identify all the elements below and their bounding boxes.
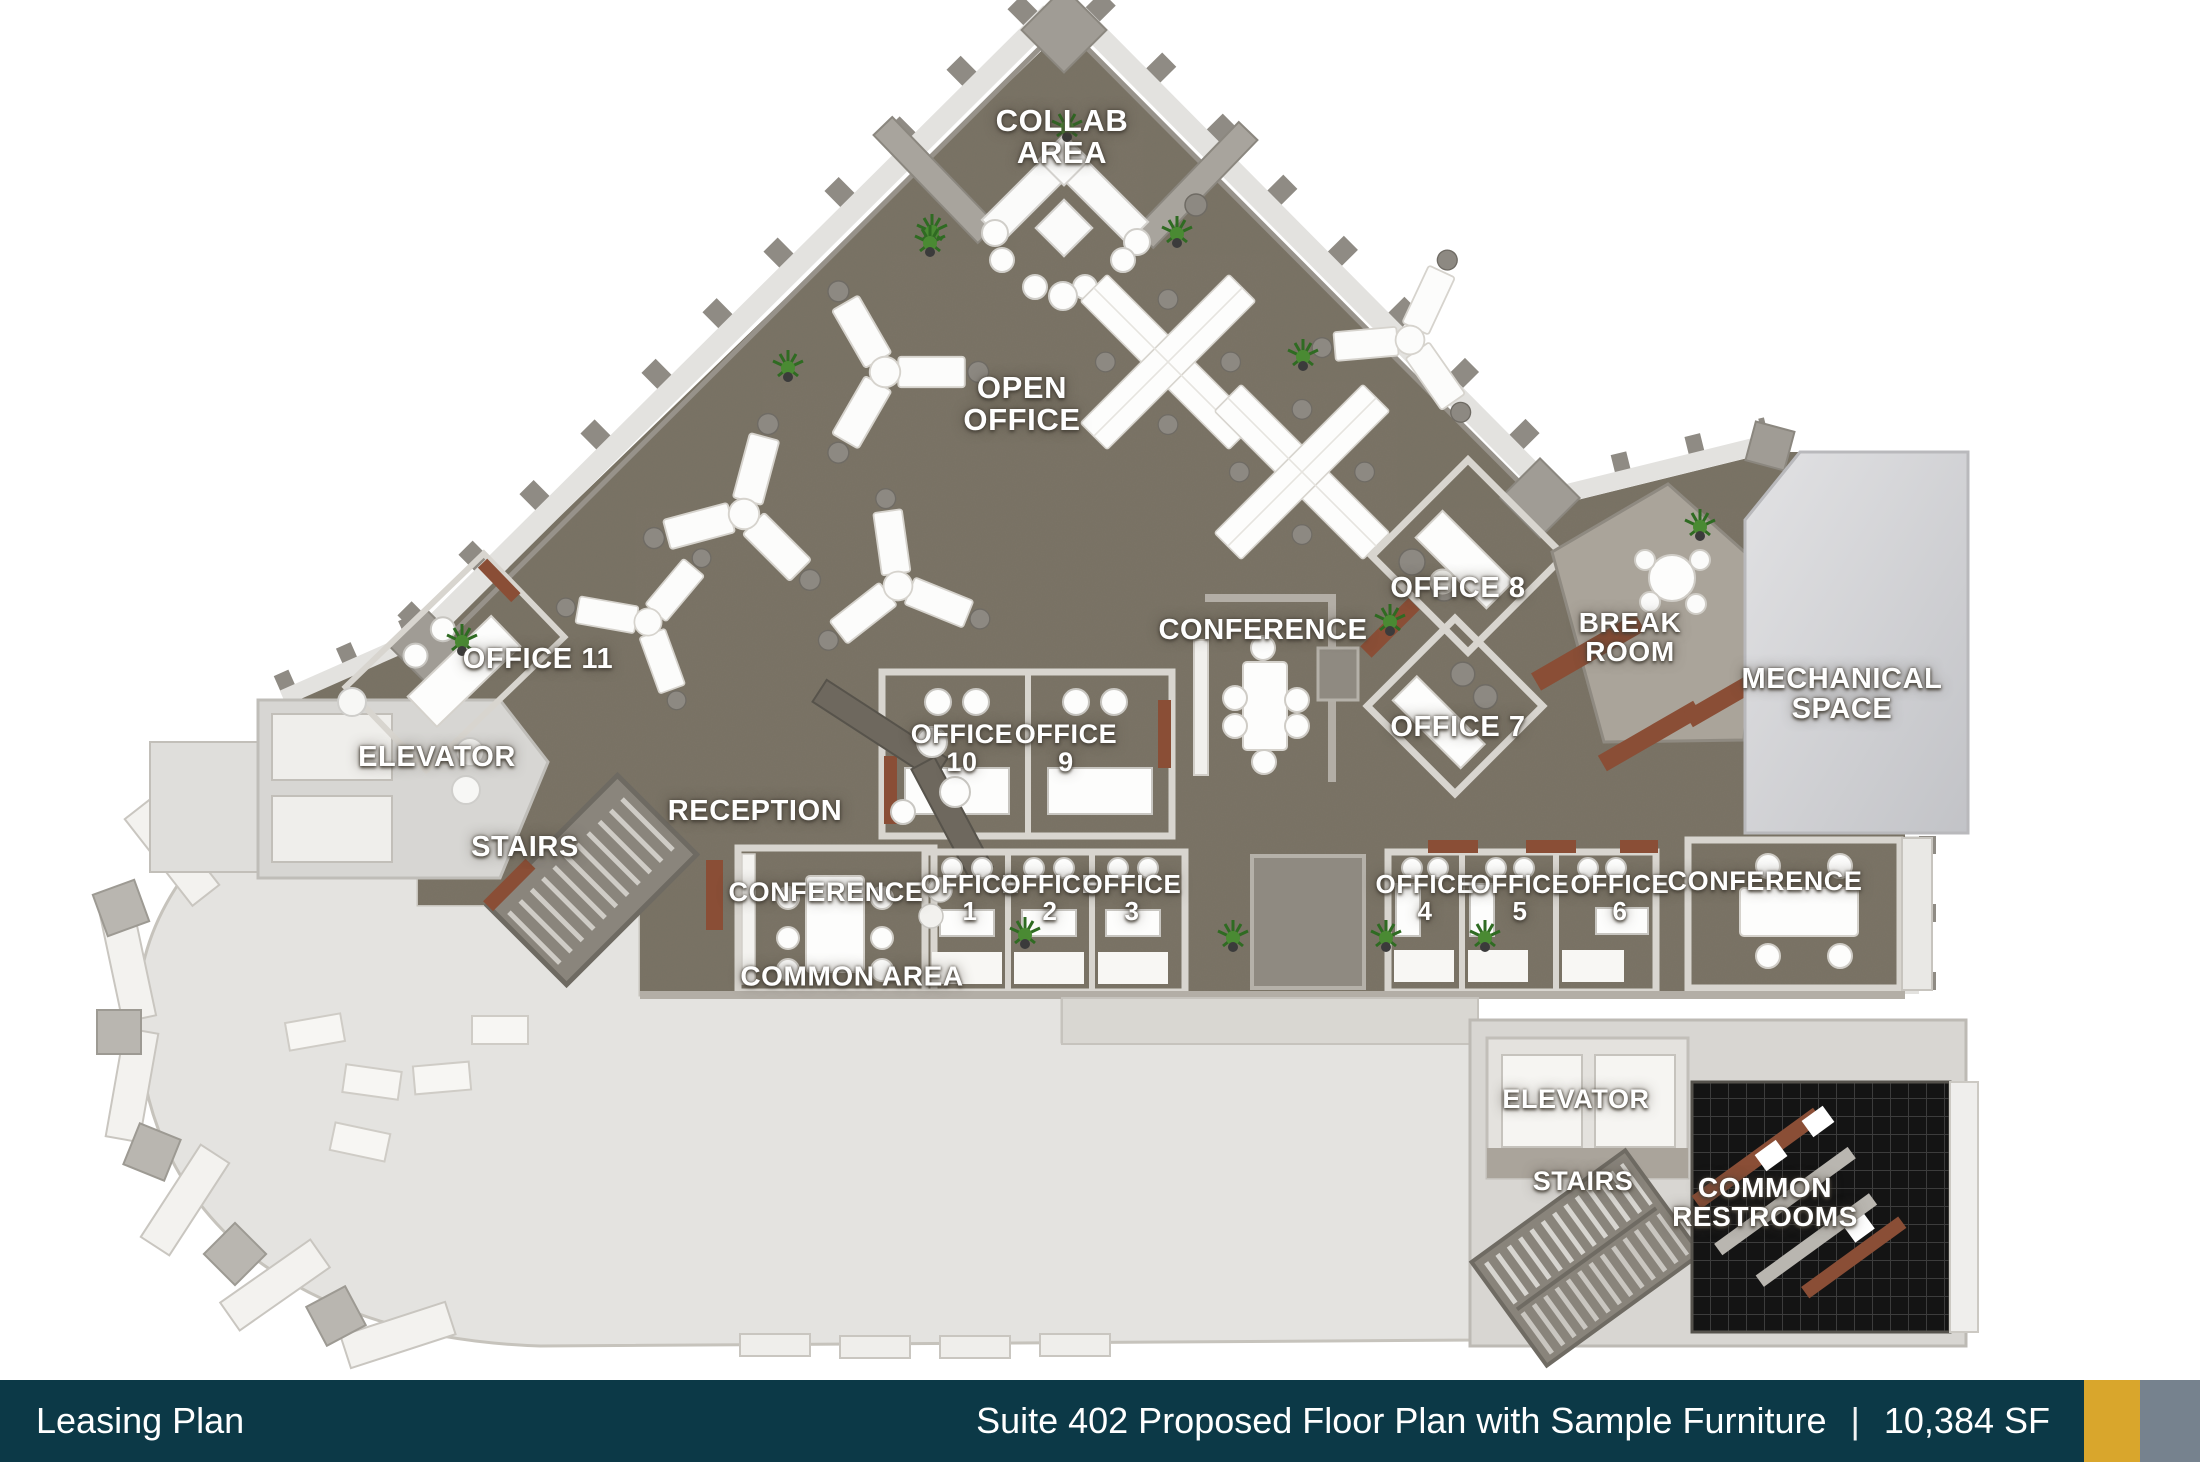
leasing-plan-page: COLLAB AREA OPEN OFFICE OFFICE 8 CONFERE… [0, 0, 2200, 1466]
building-core [1470, 1020, 1978, 1366]
footer-bar: Leasing Plan Suite 402 Proposed Floor Pl… [0, 1380, 2200, 1462]
footer-plan-type: Leasing Plan [36, 1380, 244, 1462]
office-door-panels [1428, 840, 1658, 853]
mid-band-storage [1252, 856, 1364, 988]
core-restrooms [1684, 1082, 1978, 1332]
west-corridor [150, 742, 260, 872]
footer-suite-info: Suite 402 Proposed Floor Plan with Sampl… [976, 1380, 2050, 1462]
footer-gold-accent [2084, 1380, 2140, 1462]
footer-separator: | [1851, 1380, 1860, 1462]
core-elevators [1487, 1038, 1688, 1178]
footer-suite-title: Suite 402 Proposed Floor Plan with Sampl… [976, 1400, 1826, 1441]
mechanical-space-block [1745, 452, 1968, 833]
core-connector-band [1062, 998, 1478, 1044]
footer-gray-accent [2140, 1380, 2200, 1462]
footer-area-sf: 10,384 SF [1884, 1400, 2050, 1441]
floor-plan-rendering [0, 0, 2200, 1466]
elevator-lobby-left [258, 700, 548, 878]
